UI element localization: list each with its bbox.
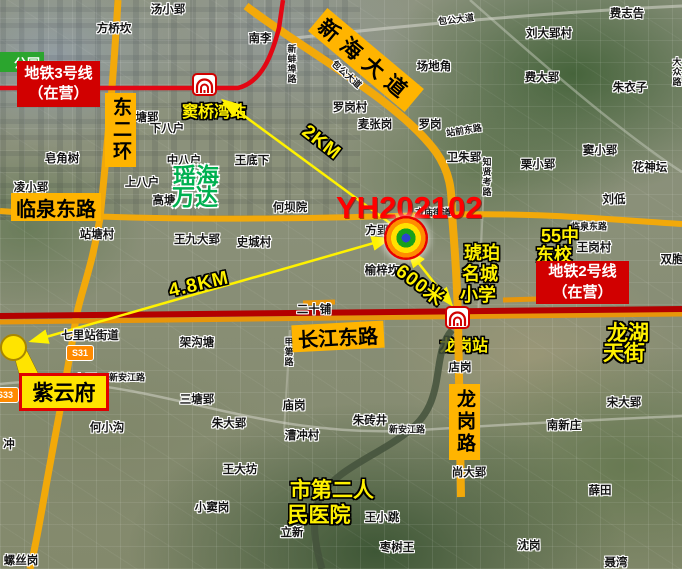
metro-line3-box: 地铁3号线 （在营） (17, 61, 100, 107)
ziyunfu-callout-box: 紫云府 (19, 373, 109, 411)
road-segment-1 (303, 302, 335, 303)
metro-arches-icon (448, 310, 467, 327)
base-road-minor-2 (284, 330, 290, 432)
base-road-northeast (470, 0, 682, 172)
metro-line2-box: 地铁2号线 （在营） (536, 261, 629, 304)
metro-line3-status: （在营） (28, 84, 88, 104)
metro-line3-name: 地铁3号线 (24, 64, 92, 84)
river (315, 330, 452, 569)
metro-station-icon-longgang (445, 306, 470, 329)
road-label-dongerhuan: 东二环 (105, 93, 136, 167)
metro-line2-name: 地铁2号线 (548, 262, 616, 282)
plot-target-marker (384, 216, 428, 260)
metro-line2-status: （在营） (552, 283, 612, 303)
metro-arches-icon (195, 77, 214, 94)
road-label-changjiang-east: 长江东路 (291, 321, 384, 353)
road-segment-2 (503, 299, 537, 300)
arrow-600m (409, 251, 451, 304)
ziyunfu-location-marker (0, 334, 27, 361)
metro-station-icon-douqiaowan (192, 73, 217, 96)
road-label-linquan-east: 临泉东路 (11, 193, 101, 221)
route-badge-s33: S33 (0, 387, 19, 403)
base-road-minor-1 (478, 158, 485, 318)
satellite-location-map: 汤小郢方桥坎南李包公大道包公大道费志告刘大郢村场地角费大郢朱衣子大众路罗岗村麦张… (0, 0, 682, 569)
road-label-longgang-road: 龙岗路 (449, 384, 480, 460)
road-xinhai-longgang (246, 6, 461, 497)
route-badge-s31: S31 (66, 345, 94, 361)
